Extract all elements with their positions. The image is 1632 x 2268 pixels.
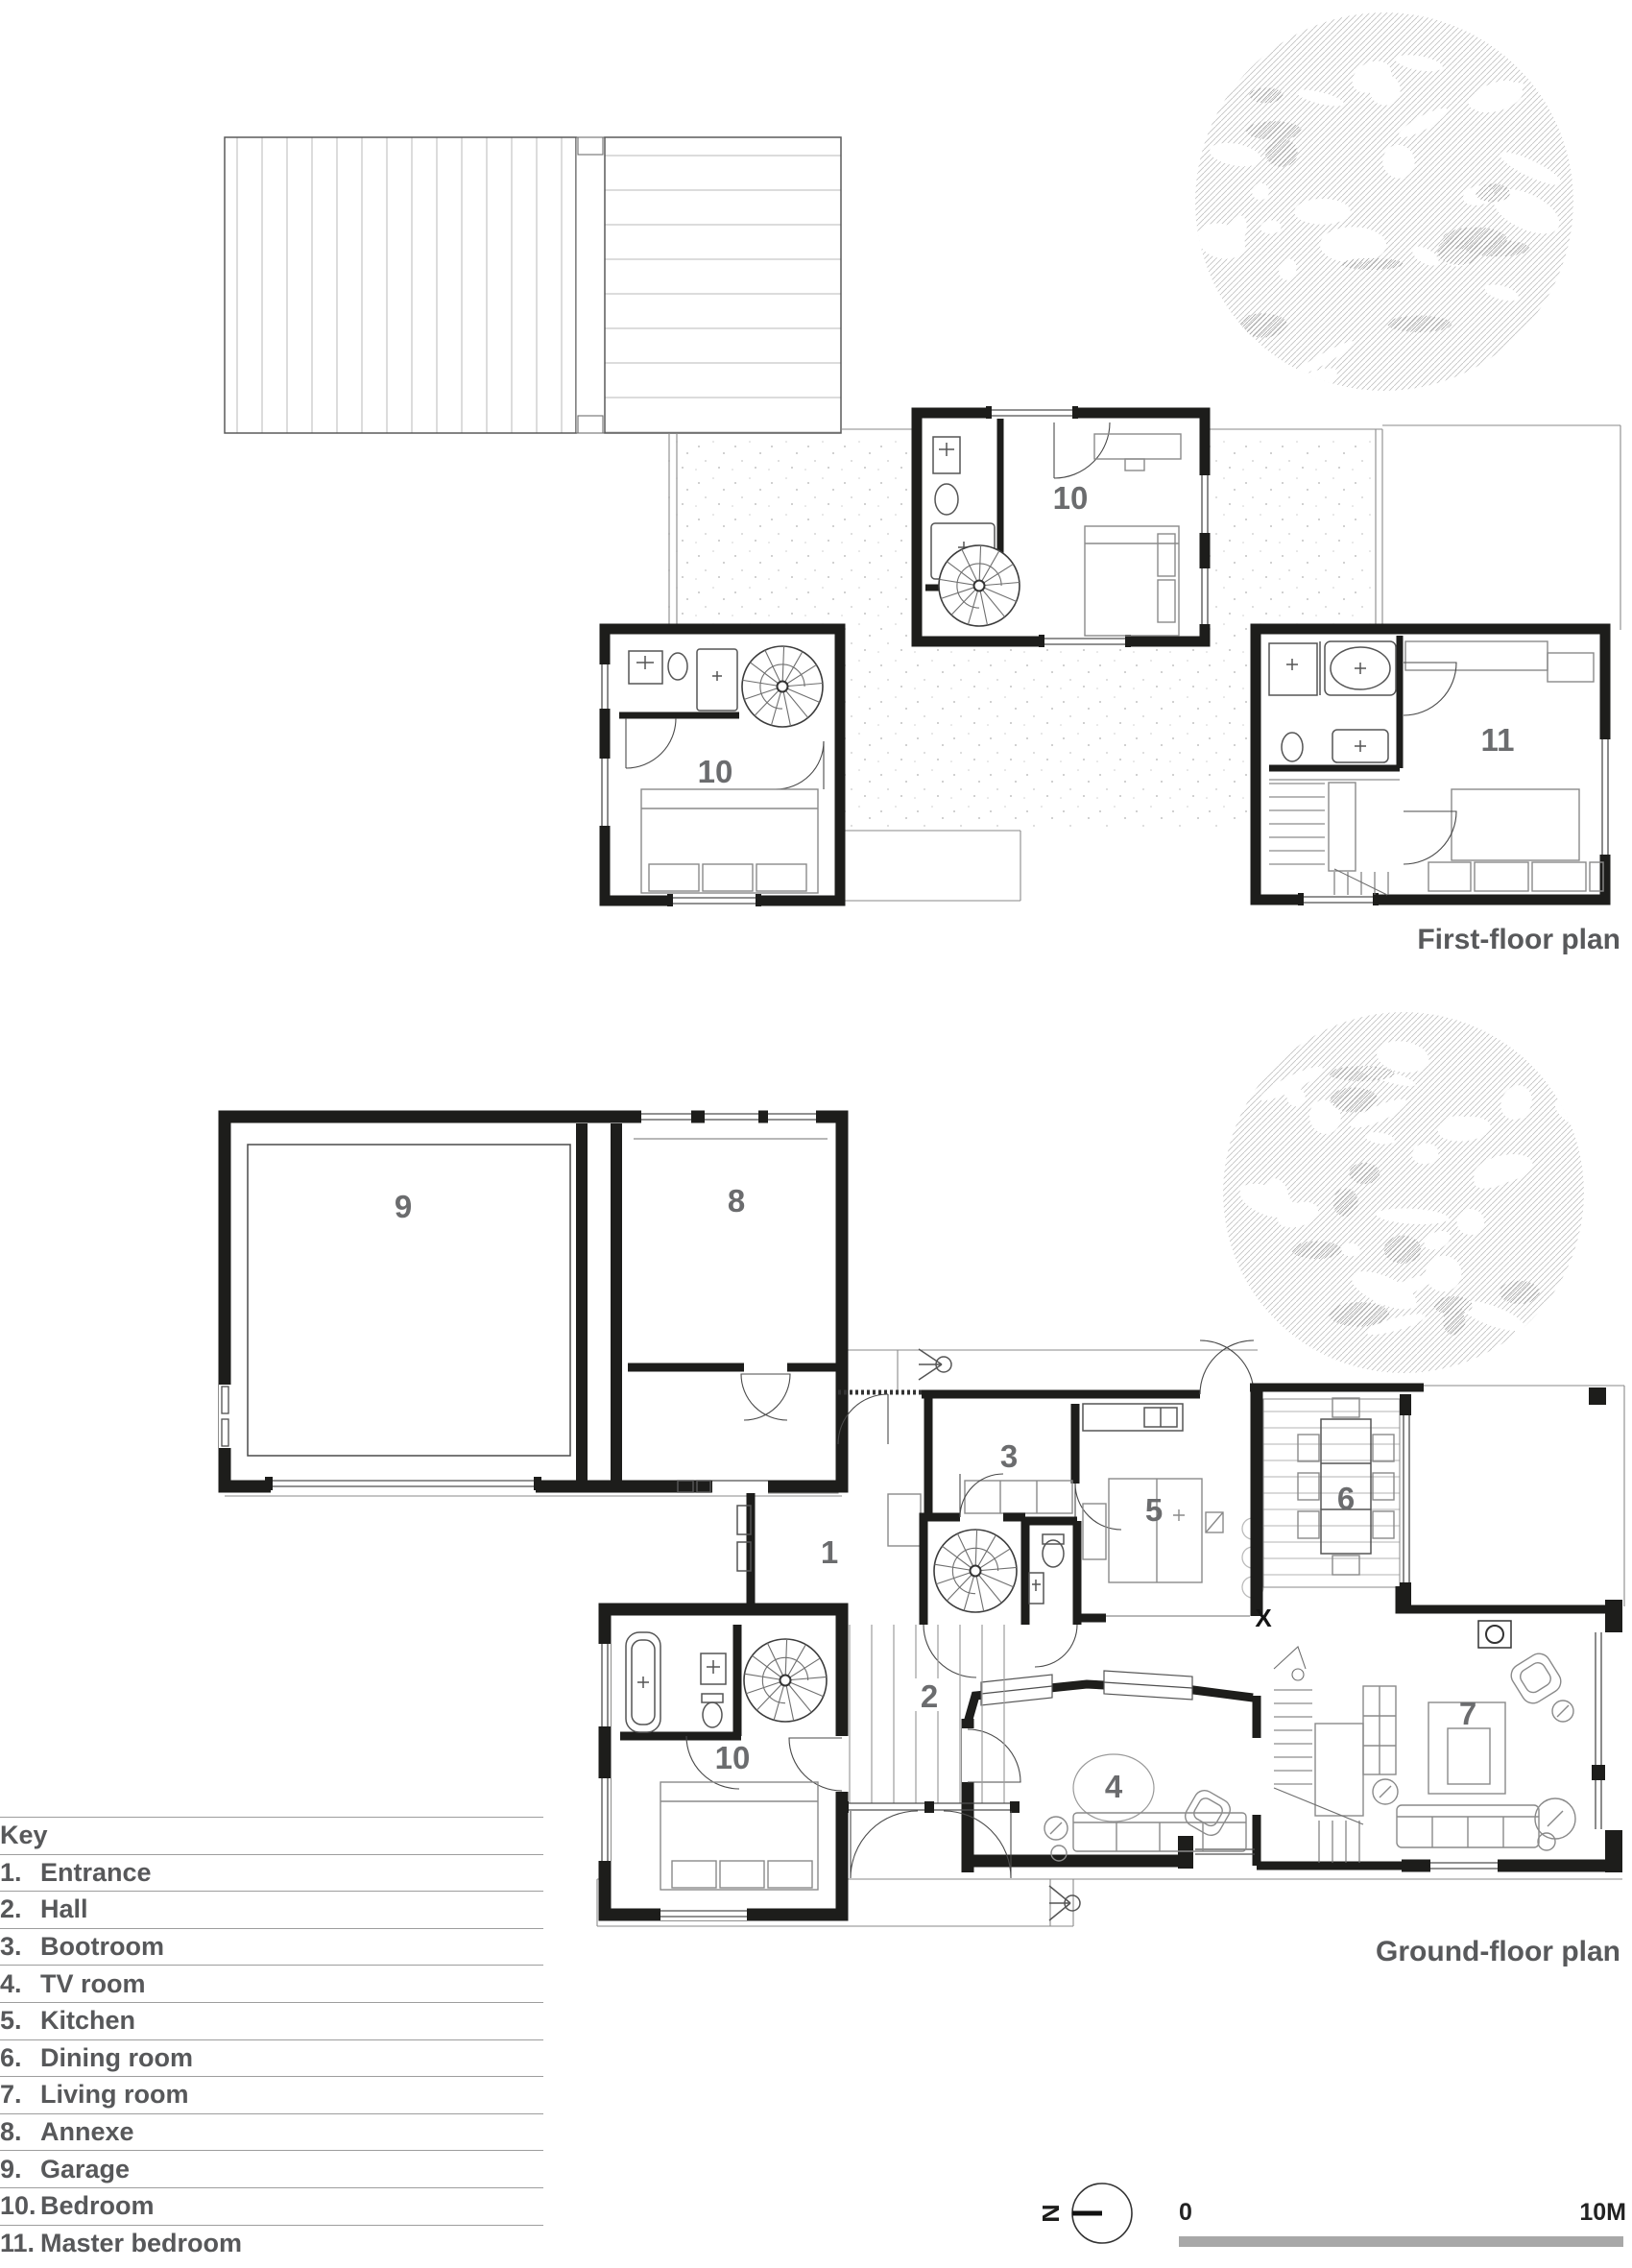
- room-hall: 2: [839, 1625, 1020, 1878]
- spiral-stair: [934, 1530, 1017, 1612]
- room-label-dining: 6: [1337, 1481, 1355, 1516]
- key-legend: Key 1.Entrance 2.Hall 3.Bootroom 4.TV ro…: [0, 1817, 543, 2261]
- north-label: N: [1043, 2204, 1065, 2223]
- room-label-annexe: 8: [728, 1183, 745, 1218]
- room-bootroom: 3: [838, 1340, 1254, 1530]
- key-item: 8.Annexe: [0, 2113, 543, 2151]
- key-item: 2.Hall: [0, 1891, 543, 1928]
- key-title: Key: [0, 1821, 48, 1850]
- key-item: 3.Bootroom: [0, 1928, 543, 1966]
- room-label-hall: 2: [921, 1678, 938, 1714]
- staircase-lower-flight: [1319, 1821, 1359, 1863]
- staircase-upper-flight: [1274, 1690, 1312, 1784]
- scale-bar-rule: [1179, 2236, 1623, 2247]
- room-label-garage: 9: [395, 1189, 412, 1224]
- roof-plan-hatched: [225, 137, 841, 433]
- level-marker: [1049, 1886, 1080, 1920]
- room-label-ground-bedroom: 10: [715, 1740, 751, 1775]
- room-living: 7: [1178, 1586, 1622, 1872]
- key-item: 10.Bedroom: [0, 2187, 543, 2225]
- first-floor-title: First-floor plan: [1044, 924, 1620, 956]
- scale-bar: 0 10M: [1179, 2199, 1626, 2247]
- key-item: 6.Dining room: [0, 2039, 543, 2077]
- scale-start-label: 0: [1179, 2199, 1192, 2227]
- room-label-entrance: 1: [821, 1534, 838, 1570]
- spiral-stair: [939, 545, 1020, 626]
- room-kitchen: 5: [1077, 1404, 1263, 1618]
- room-label-bootroom: 3: [1000, 1438, 1018, 1474]
- key-title-row: Key: [0, 1817, 543, 1854]
- level-marker: [919, 1349, 951, 1380]
- key-item: 5.Kitchen: [0, 2002, 543, 2039]
- section-marker-x: X: [1255, 1604, 1272, 1632]
- room-label-tv: 4: [1105, 1769, 1123, 1804]
- room-label-master-bedroom: 11: [1481, 722, 1515, 758]
- key-item: 9.Garage: [0, 2150, 543, 2187]
- room-label-bedroom-center: 10: [1053, 480, 1089, 516]
- ground-floor-title: Ground-floor plan: [1044, 1936, 1620, 1968]
- room-label-living: 7: [1459, 1696, 1476, 1731]
- north-indicator: N: [1043, 2162, 1158, 2268]
- key-item: 11.Master bedroom: [0, 2225, 543, 2262]
- floor-plan-sheet: { "sheet": { "type": "architectural floo…: [0, 0, 1632, 2268]
- scale-end-label: 10M: [1579, 2199, 1626, 2227]
- spiral-stair: [742, 646, 823, 727]
- key-item: 7.Living room: [0, 2076, 543, 2113]
- room-garage: 9: [219, 1117, 842, 1496]
- room-first-master-bedroom: 11: [1256, 629, 1613, 907]
- room-label-kitchen: 5: [1145, 1492, 1163, 1528]
- tree-canopy-ground-floor: [1223, 1012, 1607, 1373]
- room-label-bedroom-left: 10: [698, 754, 733, 789]
- spiral-stair: [744, 1639, 827, 1722]
- key-item: 1.Entrance: [0, 1854, 543, 1892]
- key-item: 4.TV room: [0, 1965, 543, 2002]
- tree-canopy-first-floor: [1193, 12, 1573, 406]
